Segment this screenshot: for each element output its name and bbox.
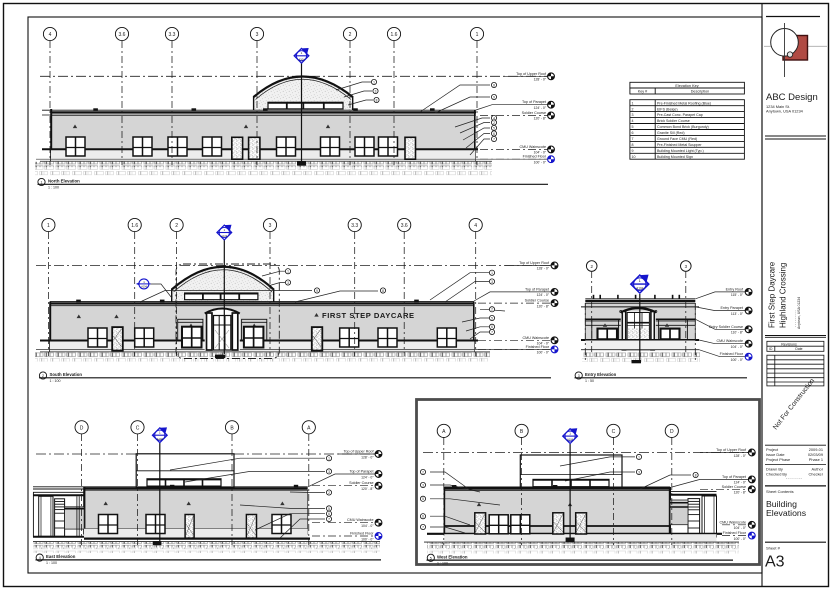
svg-text:Key #: Key # <box>638 90 648 94</box>
svg-text:128' - 0": 128' - 0" <box>734 454 747 458</box>
svg-text:100' - 0": 100' - 0" <box>731 358 744 362</box>
svg-text:3.6: 3.6 <box>401 223 408 229</box>
svg-text:Entry Roof: Entry Roof <box>726 287 744 291</box>
svg-text:3: 3 <box>287 281 289 285</box>
svg-text:Finished Floor: Finished Floor <box>523 155 547 159</box>
svg-text:Soldier Course: Soldier Course <box>349 481 373 485</box>
svg-text:6: 6 <box>328 512 330 516</box>
svg-text:CMU Wainscote: CMU Wainscote <box>720 520 747 524</box>
svg-text:Top of Upper Roof: Top of Upper Roof <box>516 72 547 76</box>
svg-text:124' - 0": 124' - 0" <box>534 106 547 110</box>
svg-text:Building Mounted Light (Typ.): Building Mounted Light (Typ.) <box>657 149 704 153</box>
svg-text:1 : 100: 1 : 100 <box>437 561 448 565</box>
svg-text:7: 7 <box>491 330 493 334</box>
svg-text:4: 4 <box>474 223 477 229</box>
svg-text:1: 1 <box>638 455 640 459</box>
svg-text:A104: A104 <box>141 286 147 289</box>
svg-text:Elevations: Elevations <box>766 508 807 518</box>
svg-text:Soldier Course: Soldier Course <box>722 485 746 489</box>
svg-text:First Step Daycare: First Step Daycare <box>768 261 777 328</box>
svg-text:1: 1 <box>476 32 479 38</box>
svg-text:3: 3 <box>632 113 634 117</box>
svg-text:2: 2 <box>632 107 634 111</box>
svg-text:Finished Floor: Finished Floor <box>526 345 550 349</box>
svg-text:CMU Wainscote: CMU Wainscote <box>347 518 374 522</box>
svg-text:5: 5 <box>422 497 424 501</box>
svg-text:West Elevation: West Elevation <box>437 554 468 559</box>
svg-text:104' - 0": 104' - 0" <box>361 524 374 528</box>
svg-text:7: 7 <box>493 137 495 141</box>
svg-text:6: 6 <box>493 132 495 136</box>
svg-text:8: 8 <box>632 143 634 147</box>
svg-text:Top of Upper Roof: Top of Upper Roof <box>716 448 747 452</box>
svg-text:2: 2 <box>493 121 495 125</box>
svg-text:8: 8 <box>493 83 495 87</box>
svg-text:100' - 0": 100' - 0" <box>534 161 547 165</box>
svg-text:Top of Upper Roof: Top of Upper Roof <box>519 261 550 265</box>
svg-text:5: 5 <box>328 507 330 511</box>
svg-text:3: 3 <box>638 470 640 474</box>
svg-text:Phase 1: Phase 1 <box>809 457 823 462</box>
svg-text:8: 8 <box>382 289 384 293</box>
svg-text:Top of Upper Roof: Top of Upper Roof <box>344 450 375 454</box>
svg-text:Elevation Key: Elevation Key <box>675 84 698 88</box>
svg-text:3: 3 <box>422 483 424 487</box>
svg-text:2: 2 <box>349 32 352 38</box>
svg-text:9: 9 <box>632 149 634 153</box>
svg-text:6: 6 <box>422 515 424 519</box>
svg-text:1 : 50: 1 : 50 <box>585 379 594 383</box>
svg-text:1.6: 1.6 <box>131 223 138 229</box>
svg-text:Granite Sill (Red): Granite Sill (Red) <box>657 131 685 135</box>
svg-text:5: 5 <box>493 126 495 130</box>
svg-text:1: 1 <box>287 270 289 274</box>
svg-text:Top of Parapet: Top of Parapet <box>525 287 549 291</box>
svg-text:110' - 8": 110' - 8" <box>731 331 744 335</box>
svg-text:EIFS (Beige): EIFS (Beige) <box>657 107 678 111</box>
svg-text:A3: A3 <box>765 554 785 571</box>
svg-text:Revisions: Revisions <box>781 342 797 346</box>
svg-text:Pre-Cast Conc. Parapet Cap: Pre-Cast Conc. Parapet Cap <box>657 113 703 117</box>
svg-text:Anytown, USA 01234: Anytown, USA 01234 <box>766 109 804 114</box>
svg-text:120' - 8": 120' - 8" <box>534 117 547 121</box>
svg-text:Finished Floor: Finished Floor <box>350 532 374 536</box>
svg-text:3: 3 <box>256 32 259 38</box>
svg-text:CMU Wainscote: CMU Wainscote <box>523 336 550 340</box>
svg-text:104' - 0": 104' - 0" <box>734 526 747 530</box>
svg-text:Finished Floor: Finished Floor <box>720 352 744 356</box>
svg-text:2: 2 <box>491 308 493 312</box>
svg-text:3: 3 <box>269 223 272 229</box>
svg-text:3.6: 3.6 <box>119 32 126 38</box>
svg-text:Sheet Contents: Sheet Contents <box>766 489 794 494</box>
svg-text:1: 1 <box>373 80 375 84</box>
svg-text:100' - 0": 100' - 0" <box>537 351 550 355</box>
svg-text:- - - - - - - -: - - - - - - - - <box>786 477 802 481</box>
svg-text:120' - 8": 120' - 8" <box>361 487 374 491</box>
svg-text:3: 3 <box>375 89 377 93</box>
svg-text:South Elevation: South Elevation <box>50 372 83 377</box>
svg-text:Entry Elevation: Entry Elevation <box>585 372 617 377</box>
svg-text:1 : 100: 1 : 100 <box>50 379 61 383</box>
svg-text:1 : 100: 1 : 100 <box>46 561 57 565</box>
svg-text:9: 9 <box>493 95 495 99</box>
svg-text:C: C <box>612 429 616 435</box>
svg-text:6: 6 <box>632 131 634 135</box>
svg-text:113' - 0": 113' - 0" <box>731 312 744 316</box>
svg-text:2: 2 <box>328 491 330 495</box>
svg-text:2: 2 <box>422 470 424 474</box>
svg-text:North Elevation: North Elevation <box>48 179 80 184</box>
svg-text:CMU Wainscote: CMU Wainscote <box>717 339 744 343</box>
svg-text:100' - 0": 100' - 0" <box>361 537 374 541</box>
svg-text:Soldier Course: Soldier Course <box>522 111 546 115</box>
svg-text:3.3: 3.3 <box>169 32 176 38</box>
svg-text:Anytown, USA 01234: Anytown, USA 01234 <box>797 297 801 329</box>
svg-text:Pre-Finished Metal Roofing (Bl: Pre-Finished Metal Roofing (Blue) <box>657 101 711 105</box>
svg-text:Checker: Checker <box>809 471 824 476</box>
svg-text:C: C <box>136 425 140 431</box>
svg-text:Common Bond Brick (Burgundy): Common Bond Brick (Burgundy) <box>657 125 709 129</box>
svg-text:4: 4 <box>49 32 52 38</box>
svg-text:D: D <box>80 425 84 431</box>
svg-text:Top of Parapet: Top of Parapet <box>350 470 374 474</box>
svg-text:Pre-Finished Metal Scupper: Pre-Finished Metal Scupper <box>657 143 702 147</box>
svg-text:Sheet #: Sheet # <box>766 546 781 551</box>
svg-text:Project Phase: Project Phase <box>766 457 790 462</box>
svg-text:Brick Soldier Course: Brick Soldier Course <box>657 119 690 123</box>
svg-text:9: 9 <box>316 289 318 293</box>
svg-text:Top of Parapet: Top of Parapet <box>522 100 546 104</box>
svg-text:CMU Wainscote: CMU Wainscote <box>520 145 547 149</box>
svg-text:East Elevation: East Elevation <box>46 554 76 559</box>
svg-text:Finished Floor: Finished Floor <box>723 531 747 535</box>
svg-text:3.3: 3.3 <box>351 223 358 229</box>
svg-text:1: 1 <box>491 271 493 275</box>
svg-text:7: 7 <box>422 525 424 529</box>
svg-text:D: D <box>670 429 674 435</box>
svg-text:5: 5 <box>491 316 493 320</box>
svg-text:6: 6 <box>491 325 493 329</box>
svg-text:Entry Soldier Course: Entry Soldier Course <box>709 325 743 329</box>
svg-text:1 : 100: 1 : 100 <box>48 186 59 190</box>
svg-text:Description: Description <box>691 90 709 94</box>
svg-text:Date: Date <box>795 347 802 351</box>
svg-text:100' - 0": 100' - 0" <box>734 537 747 541</box>
svg-text:1: 1 <box>632 101 634 105</box>
svg-text:8: 8 <box>376 98 378 102</box>
svg-text:128' - 0": 128' - 0" <box>537 267 550 271</box>
svg-text:ABC Design: ABC Design <box>766 92 818 103</box>
svg-text:ID: ID <box>769 347 773 351</box>
svg-text:128' - 0": 128' - 0" <box>361 455 374 459</box>
svg-text:1.6: 1.6 <box>391 32 398 38</box>
svg-text:2: 2 <box>175 223 178 229</box>
svg-text:4: 4 <box>632 119 634 123</box>
svg-text:1: 1 <box>47 223 50 229</box>
svg-text:120' - 8": 120' - 8" <box>734 491 747 495</box>
svg-text:3: 3 <box>491 280 493 284</box>
svg-text:Checked By: Checked By <box>766 471 787 476</box>
svg-text:3: 3 <box>328 470 330 474</box>
svg-text:Highland Crossing: Highland Crossing <box>779 263 788 328</box>
svg-text:Top of Parapet: Top of Parapet <box>722 475 746 479</box>
svg-text:124' - 0": 124' - 0" <box>361 475 374 479</box>
svg-text:8: 8 <box>695 473 697 477</box>
svg-text:124' - 0": 124' - 0" <box>537 293 550 297</box>
svg-text:Soldier Course: Soldier Course <box>525 299 549 303</box>
svg-text:7: 7 <box>328 517 330 521</box>
svg-text:10: 10 <box>632 155 636 159</box>
svg-text:Entry Parapet: Entry Parapet <box>720 306 743 310</box>
svg-text:FIRST STEP DAYCARE: FIRST STEP DAYCARE <box>322 311 415 320</box>
svg-text:7: 7 <box>632 137 634 141</box>
svg-text:5: 5 <box>632 125 634 129</box>
svg-text:120' - 8": 120' - 8" <box>537 304 550 308</box>
svg-text:Ground Face CMU (Red): Ground Face CMU (Red) <box>657 137 697 141</box>
svg-text:104' - 0": 104' - 0" <box>731 345 744 349</box>
svg-text:1: 1 <box>328 457 330 461</box>
svg-text:Building Mounted Sign: Building Mounted Sign <box>657 155 693 159</box>
svg-text:128' - 0": 128' - 0" <box>534 78 547 82</box>
svg-text:115' - 0": 115' - 0" <box>731 293 744 297</box>
